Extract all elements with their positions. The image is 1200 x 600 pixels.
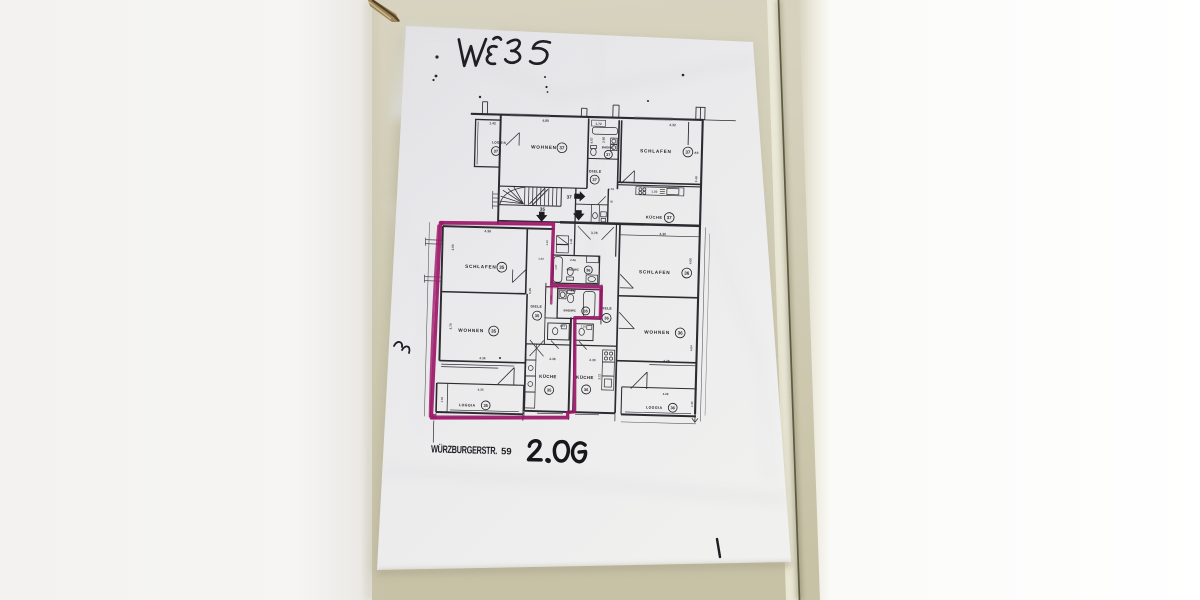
svg-text:4.00: 4.00 [688,258,692,265]
svg-text:AS: AS [694,151,698,155]
svg-text:1.13: 1.13 [545,240,549,246]
svg-text:1.30: 1.30 [440,396,444,402]
svg-text:2.55: 2.55 [602,136,606,142]
svg-text:35: 35 [584,309,588,313]
svg-text:36: 36 [678,330,684,335]
svg-text:1.42: 1.42 [489,121,496,125]
svg-text:35: 35 [540,207,546,212]
svg-text:36: 36 [586,268,590,272]
svg-text:SCHLAFEN: SCHLAFEN [639,269,671,275]
svg-text:2.38: 2.38 [549,357,556,361]
svg-text:37: 37 [606,153,610,157]
svg-text:WOHNEN: WOHNEN [531,144,557,150]
svg-text:1.45: 1.45 [569,238,573,244]
svg-text:37: 37 [685,150,691,155]
svg-text:2.66: 2.66 [570,258,576,262]
svg-text:1.74: 1.74 [608,187,614,191]
svg-text:4.00: 4.00 [451,244,455,251]
svg-text:4.32: 4.32 [669,123,676,127]
svg-text:1.40: 1.40 [690,401,694,407]
svg-text:BAD/WC: BAD/WC [564,308,577,312]
svg-text:2.48: 2.48 [694,176,698,182]
svg-text:SCHLAFEN: SCHLAFEN [465,264,497,270]
svg-text:4.35: 4.35 [478,388,484,392]
svg-text:DIELE: DIELE [589,169,602,173]
svg-text:37: 37 [667,215,673,220]
svg-text:4.30: 4.30 [659,232,666,236]
svg-text:BAD/WC: BAD/WC [567,267,580,271]
svg-text:2.39: 2.39 [589,358,596,362]
svg-text:SCHLAFEN: SCHLAFEN [640,148,672,154]
svg-text:1.21: 1.21 [560,324,566,328]
svg-text:2.42: 2.42 [571,289,577,293]
svg-text:WOHNEN: WOHNEN [458,328,484,334]
svg-text:LOGGIA: LOGGIA [492,140,507,144]
svg-text:36: 36 [684,271,690,276]
svg-text:1.72: 1.72 [595,122,602,126]
svg-text:4.28: 4.28 [663,359,670,363]
svg-text:1.02: 1.02 [538,257,544,261]
svg-text:4.28: 4.28 [663,392,669,396]
svg-text:4.36: 4.36 [484,229,491,233]
svg-text:3.72: 3.72 [597,373,601,379]
svg-text:37: 37 [567,194,573,199]
svg-text:4.07: 4.07 [590,137,594,144]
svg-text:4.64: 4.64 [689,345,693,351]
svg-text:4.70: 4.70 [449,323,453,330]
svg-text:59: 59 [501,446,512,457]
svg-text:1.30: 1.30 [651,190,657,194]
svg-text:KÜCHE: KÜCHE [539,374,557,379]
svg-text:5.35: 5.35 [528,288,532,294]
svg-text:4.80: 4.80 [542,119,549,123]
svg-text:DIELE: DIELE [531,304,543,308]
svg-text:3.78: 3.78 [591,231,598,235]
svg-text:BAD/WC: BAD/WC [602,145,615,149]
svg-text:35: 35 [491,329,497,334]
svg-text:KÜCHE: KÜCHE [576,375,594,380]
svg-text:LOGGIA: LOGGIA [459,403,476,407]
svg-text:1.25: 1.25 [581,324,587,328]
svg-text:4.36: 4.36 [479,356,486,360]
svg-text:35: 35 [499,265,505,270]
svg-text:WOHNEN: WOHNEN [644,329,670,335]
svg-text:1.57: 1.57 [554,264,558,270]
svg-text:37: 37 [559,145,565,150]
svg-text:KÜCHE: KÜCHE [646,214,663,219]
svg-text:LOGGIA: LOGGIA [646,406,663,410]
svg-text:WÜRZBURGERSTR.: WÜRZBURGERSTR. [431,442,498,457]
